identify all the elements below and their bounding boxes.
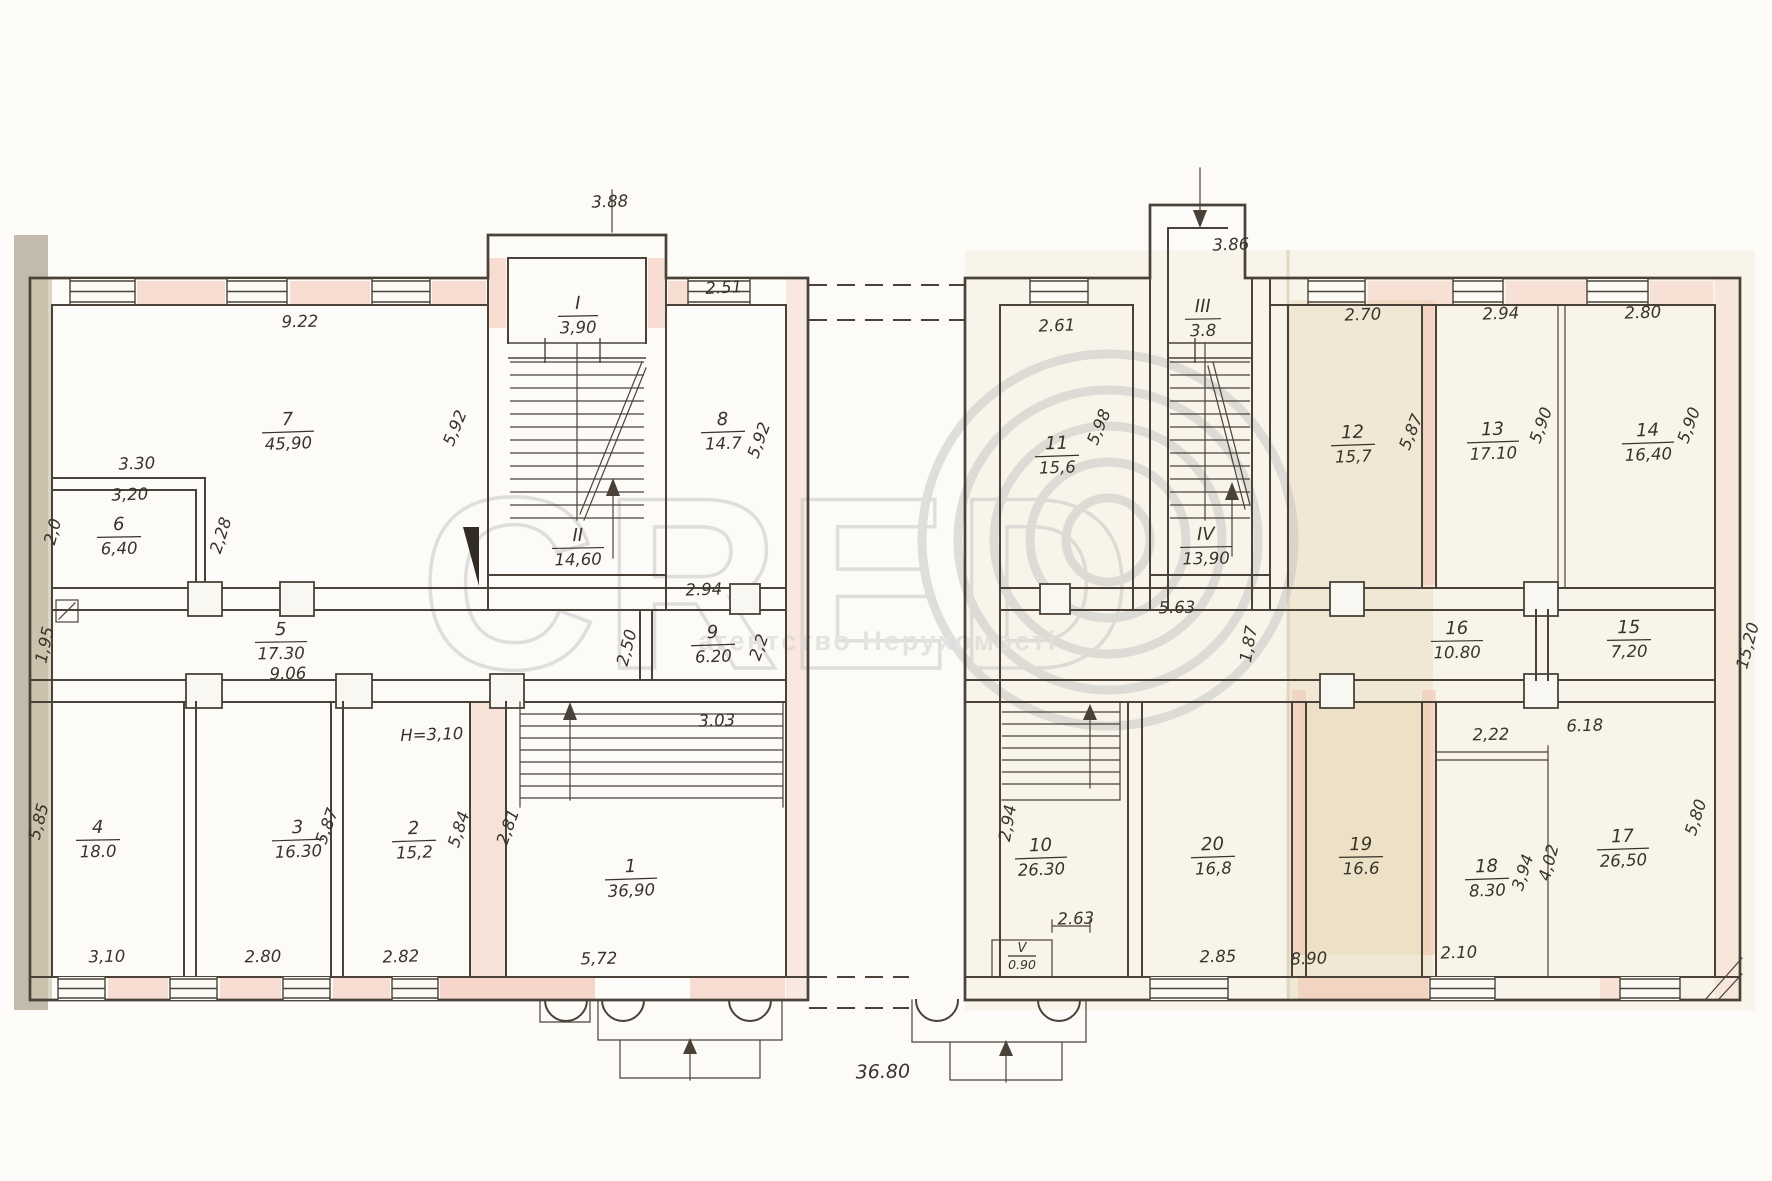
svg-text:II: II <box>572 525 583 546</box>
annotation-ceiling-height: H=3,10 <box>400 724 464 745</box>
dim-8.90: 8.90 <box>1290 948 1327 968</box>
svg-text:15,6: 15,6 <box>1039 457 1076 477</box>
dim-2.94-a: 2.94 <box>685 579 722 599</box>
scanned-floor-plan-page: CRED агентство Нерухомості <box>0 0 1772 1181</box>
svg-text:6,40: 6,40 <box>101 539 138 559</box>
svg-text:7,20: 7,20 <box>1611 642 1648 662</box>
dim-9.22: 9.22 <box>281 312 318 332</box>
svg-text:17: 17 <box>1611 826 1635 848</box>
svg-text:4: 4 <box>92 817 104 838</box>
svg-text:III: III <box>1195 296 1211 317</box>
svg-text:17.10: 17.10 <box>1469 443 1517 464</box>
svg-text:14,60: 14,60 <box>554 550 602 570</box>
svg-text:2: 2 <box>407 818 419 839</box>
svg-text:15,7: 15,7 <box>1335 446 1373 466</box>
svg-text:7: 7 <box>281 409 294 430</box>
dim-2.82: 2.82 <box>382 946 419 966</box>
svg-text:13,90: 13,90 <box>1182 549 1230 569</box>
svg-text:18: 18 <box>1475 856 1499 878</box>
dim-2.51: 2.51 <box>705 277 743 298</box>
svg-text:3,90: 3,90 <box>560 318 597 338</box>
svg-text:14: 14 <box>1636 420 1660 442</box>
svg-text:10: 10 <box>1029 835 1053 857</box>
svg-text:15,2: 15,2 <box>396 842 433 862</box>
svg-text:1: 1 <box>624 856 636 877</box>
svg-text:6.20: 6.20 <box>695 646 732 666</box>
svg-text:8: 8 <box>716 409 728 430</box>
dim-3.10: 3,10 <box>88 947 125 967</box>
svg-text:IV: IV <box>1197 524 1217 545</box>
svg-text:12: 12 <box>1341 422 1365 444</box>
svg-text:8.30: 8.30 <box>1469 880 1506 900</box>
svg-text:26.30: 26.30 <box>1017 859 1065 880</box>
svg-text:18.0: 18.0 <box>80 842 117 862</box>
svg-text:17.30: 17.30 <box>257 644 305 664</box>
svg-text:19: 19 <box>1349 834 1372 855</box>
svg-text:11: 11 <box>1045 433 1069 455</box>
dim-5.63: 5.63 <box>1158 598 1195 618</box>
svg-text:5: 5 <box>275 619 287 640</box>
svg-text:9: 9 <box>706 622 718 643</box>
dim-2.22: 2,22 <box>1472 725 1509 745</box>
svg-text:16,40: 16,40 <box>1624 444 1672 465</box>
svg-text:3.8: 3.8 <box>1190 321 1217 340</box>
svg-text:16.30: 16.30 <box>274 841 322 862</box>
dim-2.70: 2.70 <box>1344 304 1381 324</box>
dim-3.86: 3.86 <box>1212 234 1249 254</box>
svg-text:I: I <box>575 293 581 314</box>
dim-9.06: 9.06 <box>269 664 306 684</box>
svg-text:3: 3 <box>291 817 303 838</box>
dim-6.18: 6.18 <box>1566 715 1603 735</box>
dim-2.63: 2.63 <box>1057 908 1094 928</box>
svg-text:36,90: 36,90 <box>607 880 655 901</box>
svg-text:20: 20 <box>1201 834 1225 856</box>
svg-text:16.6: 16.6 <box>1343 859 1380 879</box>
svg-text:0.90: 0.90 <box>1008 957 1036 972</box>
svg-text:16,8: 16,8 <box>1195 858 1232 878</box>
dim-36.80: 36.80 <box>856 1061 911 1084</box>
dim-5.72: 5,72 <box>580 949 617 969</box>
dim-3.03: 3.03 <box>698 710 735 730</box>
dim-3.30: 3.30 <box>118 453 155 473</box>
dim-2.94-b: 2.94 <box>1482 303 1519 323</box>
dim-3.20: 3,20 <box>111 484 148 504</box>
svg-text:45,90: 45,90 <box>264 433 312 454</box>
svg-text:26,50: 26,50 <box>1599 850 1647 871</box>
svg-text:10.80: 10.80 <box>1433 643 1481 663</box>
svg-text:V: V <box>1018 941 1028 956</box>
dim-2.85: 2.85 <box>1199 947 1236 967</box>
dim-3.88: 3.88 <box>591 191 628 211</box>
svg-text:16: 16 <box>1445 618 1468 639</box>
svg-text:14.7: 14.7 <box>705 433 743 453</box>
svg-text:13: 13 <box>1481 419 1505 441</box>
dim-2.80-a: 2.80 <box>244 947 281 967</box>
dim-2.61: 2.61 <box>1038 315 1075 335</box>
watermark-letters: CRED <box>420 446 1138 720</box>
dim-2.80-b: 2.80 <box>1624 302 1661 322</box>
svg-text:6: 6 <box>113 514 125 535</box>
svg-text:15: 15 <box>1617 617 1640 638</box>
dim-2.10: 2.10 <box>1440 942 1477 962</box>
floor-plan-drawing: CRED агентство Нерухомості <box>0 0 1772 1181</box>
